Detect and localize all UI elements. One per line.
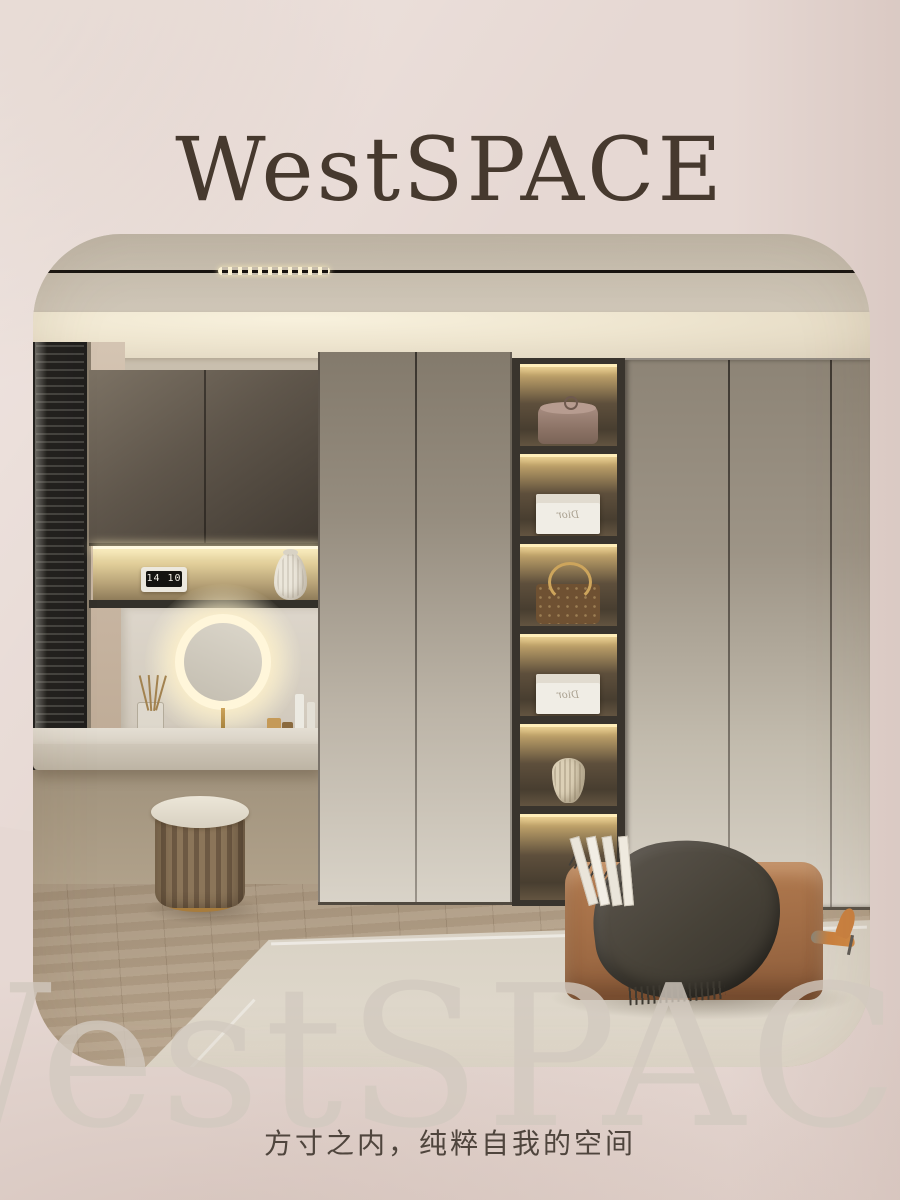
dior-label: Dior — [536, 510, 600, 521]
heel-standing — [834, 906, 858, 939]
cabinet-door-seam — [204, 370, 206, 543]
wardrobe-door-seam — [728, 360, 730, 907]
track-light — [47, 270, 859, 273]
room-photo: 14 10 — [33, 234, 870, 1067]
window-blinds — [33, 342, 91, 774]
monogram-handbag — [536, 584, 600, 624]
ceiling — [33, 234, 870, 312]
shelf-cell — [520, 364, 617, 446]
countertop-front-edge — [33, 744, 323, 770]
display-shelf-column: Dior Dior — [512, 358, 625, 906]
shelf-cell — [520, 724, 617, 806]
shelf-cell — [520, 544, 617, 626]
shelf-cell: Dior — [520, 634, 617, 716]
book-stack — [571, 830, 645, 906]
dior-label: Dior — [536, 690, 600, 701]
wardrobe-sliding-doors — [318, 352, 512, 905]
wardrobe-door-seam — [415, 352, 417, 902]
high-heels — [811, 908, 870, 962]
led-mirror — [175, 614, 271, 710]
wardrobe-door-seam — [830, 360, 832, 907]
stool-cushion — [151, 796, 249, 828]
dior-gift-box: Dior — [536, 494, 600, 534]
upper-cabinet — [89, 370, 321, 546]
clock-display: 14 10 — [146, 571, 182, 587]
tagline: 方寸之内，纯粹自我的空间 — [0, 1122, 900, 1162]
hat-box — [538, 404, 598, 444]
brand-title: WestSPACE — [0, 126, 900, 214]
track-light-spots — [218, 267, 330, 275]
ribbed-table-lamp — [552, 758, 585, 803]
flip-clock: 14 10 — [141, 567, 187, 592]
dior-gift-box: Dior — [536, 674, 600, 714]
vanity-countertop — [33, 728, 323, 744]
poster: WestSPACE 14 10 — [0, 0, 900, 1200]
shelf-cell: Dior — [520, 454, 617, 536]
wardrobe-right — [625, 358, 870, 910]
